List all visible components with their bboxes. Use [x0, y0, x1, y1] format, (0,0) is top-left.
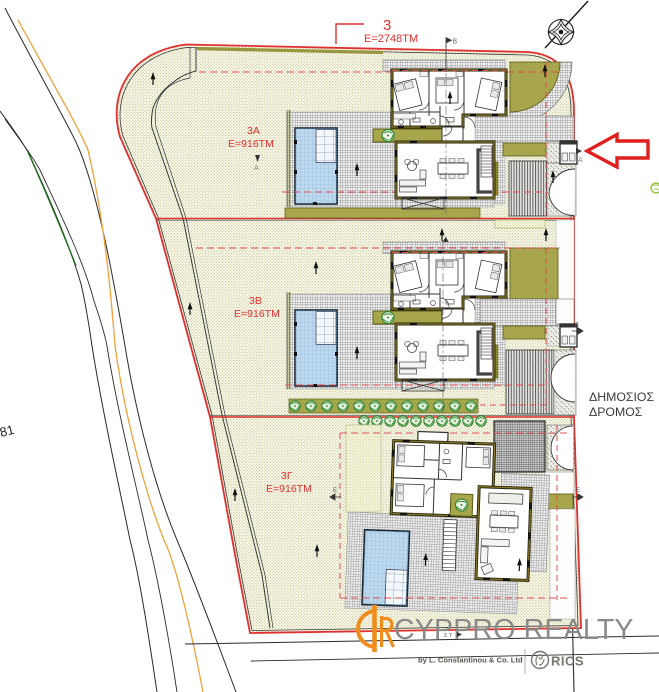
- svg-text:3: 3: [383, 17, 391, 34]
- svg-text:E=916TM: E=916TM: [266, 483, 312, 495]
- svg-text:CYPPRO REALTY: CYPPRO REALTY: [394, 614, 634, 646]
- svg-text:Σ Τ: Σ Τ: [444, 633, 453, 639]
- svg-text:E=2748TM: E=2748TM: [364, 33, 418, 45]
- svg-text:ΔΡΟΜΟΣ: ΔΡΟΜΟΣ: [589, 405, 643, 419]
- svg-text:A: A: [254, 165, 259, 172]
- svg-text:3Γ: 3Γ: [281, 470, 293, 482]
- svg-text:E=916TM: E=916TM: [228, 138, 274, 150]
- svg-text:E: E: [575, 323, 579, 329]
- svg-text:ΔΗΜΟΣΙΟΣ: ΔΗΜΟΣΙΟΣ: [589, 390, 654, 404]
- svg-text:E: E: [576, 488, 580, 494]
- svg-text:RICS: RICS: [551, 654, 584, 669]
- svg-text:B: B: [453, 39, 458, 46]
- svg-text:E=916TM: E=916TM: [234, 308, 280, 320]
- svg-text:E: E: [333, 488, 337, 494]
- svg-text:A: A: [578, 157, 583, 164]
- svg-text:3A: 3A: [247, 125, 260, 137]
- svg-text:by L. Constantinou & Co. Ltd: by L. Constantinou & Co. Ltd: [418, 656, 523, 665]
- svg-text:3B: 3B: [249, 295, 262, 307]
